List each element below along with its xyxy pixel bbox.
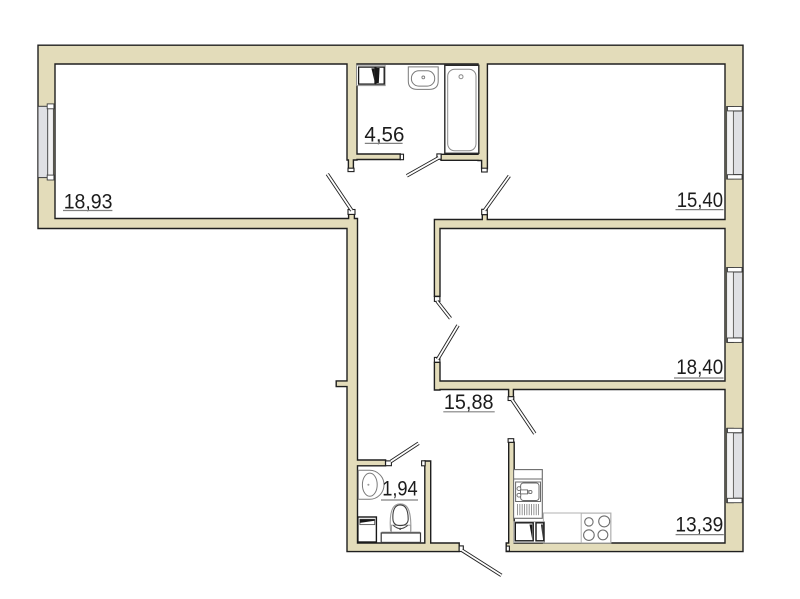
- svg-text:15,88: 15,88: [444, 390, 494, 414]
- svg-text:18,40: 18,40: [676, 355, 723, 379]
- svg-text:15,40: 15,40: [677, 188, 723, 212]
- svg-text:18,93: 18,93: [64, 189, 113, 213]
- svg-text:13,39: 13,39: [675, 513, 723, 537]
- svg-text:1,94: 1,94: [382, 477, 418, 501]
